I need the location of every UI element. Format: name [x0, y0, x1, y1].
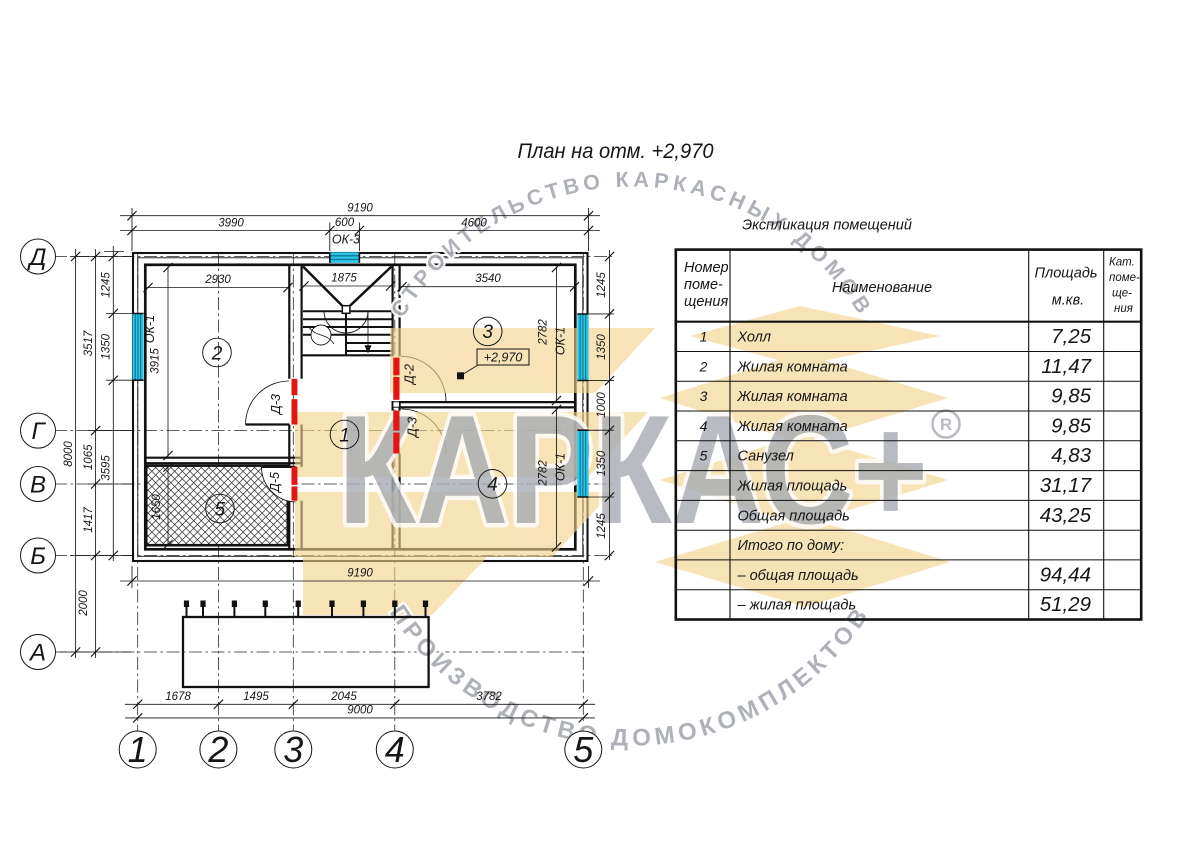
svg-text:Площадь: Площадь	[1035, 266, 1098, 282]
svg-text:1495: 1495	[243, 691, 269, 703]
svg-text:Жилая комната: Жилая комната	[737, 419, 848, 435]
svg-text:ния: ния	[1114, 303, 1133, 315]
svg-text:1678: 1678	[165, 691, 191, 703]
svg-text:31,17: 31,17	[1040, 474, 1093, 497]
svg-text:9000: 9000	[347, 705, 373, 717]
svg-text:1875: 1875	[331, 273, 357, 285]
svg-text:Жилая площадь: Жилая площадь	[737, 479, 848, 495]
svg-text:Г: Г	[31, 418, 46, 445]
svg-text:1: 1	[700, 329, 708, 345]
svg-text:3915: 3915	[150, 348, 162, 374]
svg-text:ще-: ще-	[1112, 288, 1132, 300]
svg-text:43,25: 43,25	[1040, 504, 1092, 527]
svg-text:11,47: 11,47	[1041, 355, 1092, 378]
svg-text:ОК-3: ОК-3	[332, 233, 360, 247]
svg-text:2045: 2045	[330, 691, 357, 703]
svg-text:2000: 2000	[78, 590, 90, 617]
svg-text:+2,970: +2,970	[484, 351, 523, 365]
svg-text:3: 3	[283, 729, 303, 770]
svg-text:2930: 2930	[204, 274, 231, 286]
svg-text:А: А	[28, 639, 46, 666]
svg-text:– общая площадь: – общая площадь	[737, 568, 859, 584]
svg-text:1417: 1417	[83, 507, 95, 533]
svg-text:1350: 1350	[596, 450, 608, 476]
svg-text:ОК-1: ОК-1	[554, 453, 568, 481]
svg-text:Итого по дому:: Итого по дому:	[738, 538, 845, 554]
svg-text:1: 1	[128, 729, 148, 770]
svg-text:Д-2: Д-2	[403, 364, 417, 386]
svg-text:В: В	[30, 471, 46, 498]
svg-text:2782: 2782	[538, 319, 550, 346]
svg-text:Жилая комната: Жилая комната	[737, 389, 848, 405]
svg-text:Д: Д	[27, 244, 47, 271]
svg-text:щения: щения	[684, 294, 728, 310]
svg-text:Экспликация помещений: Экспликация помещений	[742, 218, 912, 234]
svg-text:9,85: 9,85	[1051, 414, 1091, 437]
svg-text:8000: 8000	[63, 441, 75, 467]
svg-text:4: 4	[385, 729, 405, 770]
svg-text:4: 4	[487, 475, 498, 496]
svg-text:1350: 1350	[596, 334, 608, 360]
svg-text:Жилая комната: Жилая комната	[737, 359, 848, 375]
svg-text:1: 1	[339, 425, 350, 446]
svg-text:2782: 2782	[538, 460, 550, 487]
svg-text:2: 2	[699, 358, 708, 374]
svg-text:поме-: поме-	[1109, 272, 1140, 284]
svg-text:3517: 3517	[83, 330, 95, 356]
svg-text:Д-5: Д-5	[268, 472, 282, 494]
svg-text:4,83: 4,83	[1051, 444, 1091, 467]
svg-text:1245: 1245	[596, 513, 608, 539]
svg-text:94,44: 94,44	[1040, 563, 1091, 586]
svg-text:Д-3: Д-3	[406, 417, 420, 439]
svg-text:Холл: Холл	[737, 330, 771, 346]
svg-text:Номер: Номер	[684, 260, 729, 276]
svg-text:– жилая площадь: – жилая площадь	[737, 598, 857, 614]
svg-text:5: 5	[215, 499, 226, 520]
svg-text:1650: 1650	[151, 494, 163, 520]
svg-text:1245: 1245	[596, 272, 608, 298]
svg-text:Общая площадь: Общая площадь	[738, 508, 850, 524]
svg-text:1000: 1000	[596, 392, 608, 418]
svg-text:3540: 3540	[475, 273, 501, 285]
svg-text:поме-: поме-	[684, 277, 723, 293]
svg-text:2: 2	[207, 729, 228, 770]
svg-text:3: 3	[482, 322, 493, 343]
svg-text:3595: 3595	[101, 455, 113, 481]
svg-text:5: 5	[573, 729, 594, 770]
svg-text:9190: 9190	[347, 203, 373, 215]
svg-text:3: 3	[700, 388, 708, 404]
svg-text:Д-3: Д-3	[269, 394, 283, 416]
svg-text:Наименование: Наименование	[832, 280, 932, 296]
svg-text:3990: 3990	[218, 218, 244, 230]
svg-text:ОК-1: ОК-1	[143, 315, 157, 343]
svg-text:5: 5	[700, 448, 708, 464]
svg-text:ОК-1: ОК-1	[554, 327, 568, 355]
svg-text:3782: 3782	[476, 691, 502, 703]
svg-text:1245: 1245	[101, 272, 113, 298]
svg-text:1350: 1350	[101, 333, 113, 359]
svg-text:R: R	[940, 415, 952, 434]
svg-text:9190: 9190	[347, 568, 373, 580]
svg-text:4600: 4600	[461, 218, 487, 230]
svg-text:План на отм. +2,970: План на отм. +2,970	[518, 139, 714, 163]
svg-text:51,29: 51,29	[1040, 593, 1091, 616]
svg-text:7,25: 7,25	[1051, 325, 1091, 348]
svg-text:Санузел: Санузел	[738, 449, 794, 465]
svg-text:Б: Б	[30, 543, 46, 570]
svg-text:2: 2	[211, 343, 223, 364]
svg-text:м.кв.: м.кв.	[1052, 293, 1084, 309]
svg-text:4: 4	[700, 418, 708, 434]
svg-text:1065: 1065	[83, 444, 95, 470]
svg-text:Кат.: Кат.	[1109, 257, 1135, 269]
svg-text:9,85: 9,85	[1051, 385, 1091, 408]
svg-text:600: 600	[335, 217, 355, 229]
